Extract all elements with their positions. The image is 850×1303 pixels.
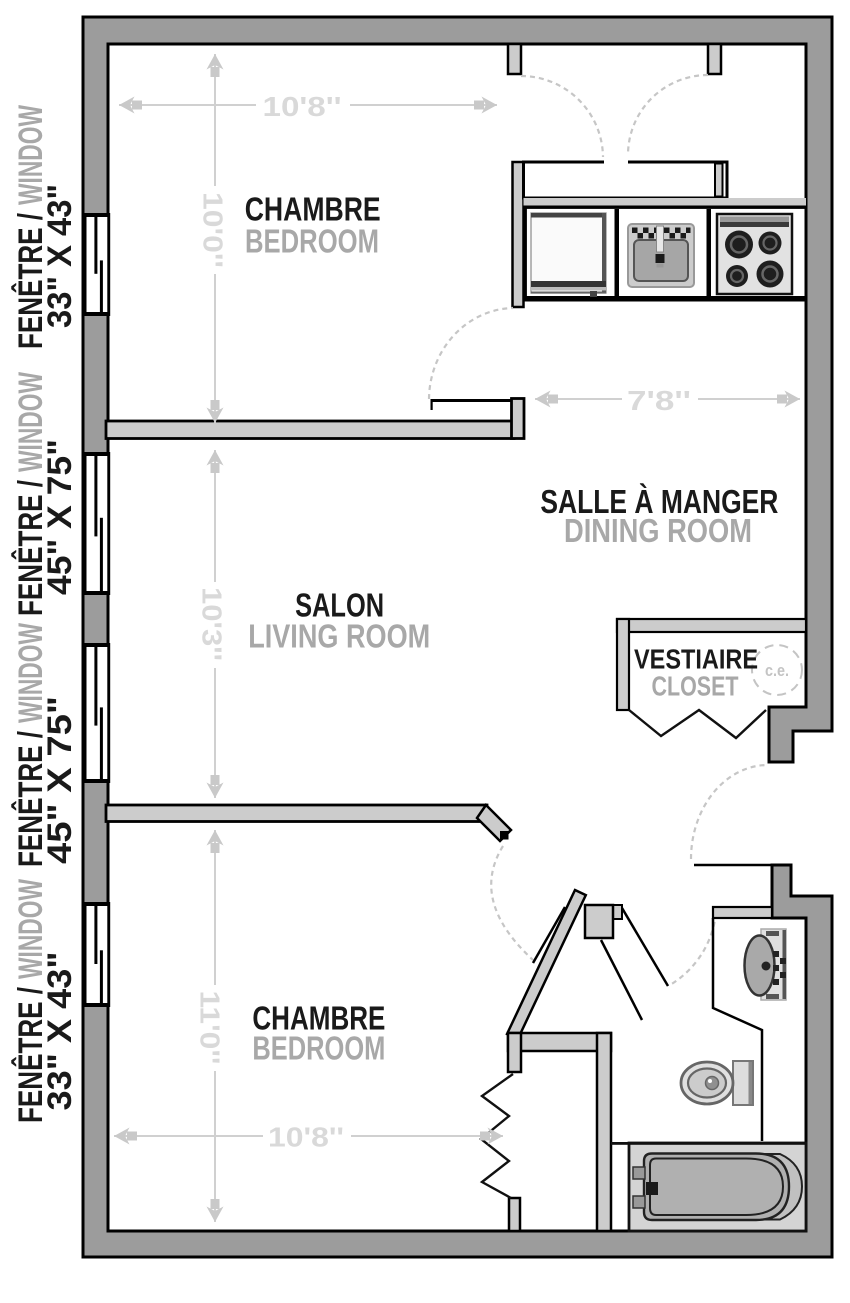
svg-text:BEDROOM: BEDROOM: [245, 223, 379, 260]
svg-text:45" X 75": 45" X 75": [41, 696, 79, 864]
svg-text:33" X 43": 33" X 43": [41, 952, 79, 1111]
svg-text:10'3'': 10'3'': [197, 587, 228, 661]
svg-text:BEDROOM: BEDROOM: [252, 1030, 385, 1067]
svg-text:10'8'': 10'8'': [268, 1122, 344, 1153]
svg-text:10'8'': 10'8'': [263, 91, 342, 122]
svg-text:33" X 43": 33" X 43": [41, 184, 79, 328]
svg-text:LIVING ROOM: LIVING ROOM: [248, 617, 430, 654]
svg-text:CLOSET: CLOSET: [652, 670, 739, 701]
svg-text:7'8'': 7'8'': [627, 385, 691, 416]
svg-text:45" X 75": 45" X 75": [41, 439, 79, 595]
svg-text:10'0'': 10'0'': [198, 192, 229, 268]
svg-text:c.e.: c.e.: [765, 661, 789, 680]
svg-text:11'0'': 11'0'': [195, 991, 226, 1065]
svg-text:DINING ROOM: DINING ROOM: [564, 512, 752, 549]
